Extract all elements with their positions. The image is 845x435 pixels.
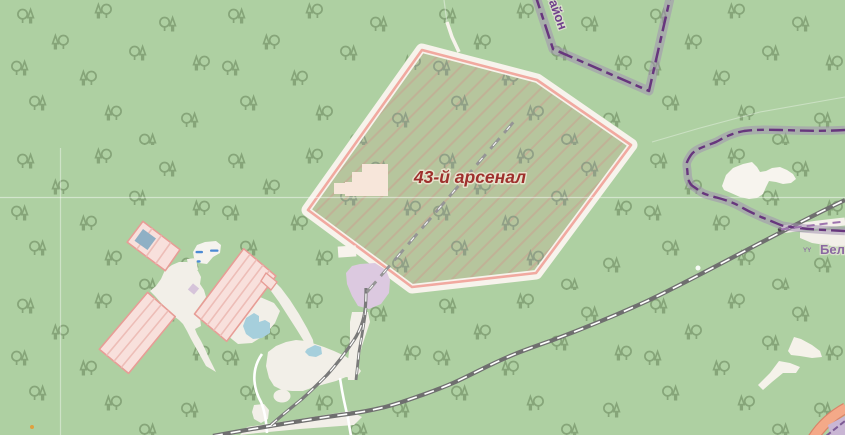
svg-text:Бел: Бел bbox=[820, 242, 845, 257]
svg-text:43-й арсенал: 43-й арсенал bbox=[413, 167, 526, 187]
svg-text:ʏʏ: ʏʏ bbox=[803, 245, 812, 254]
